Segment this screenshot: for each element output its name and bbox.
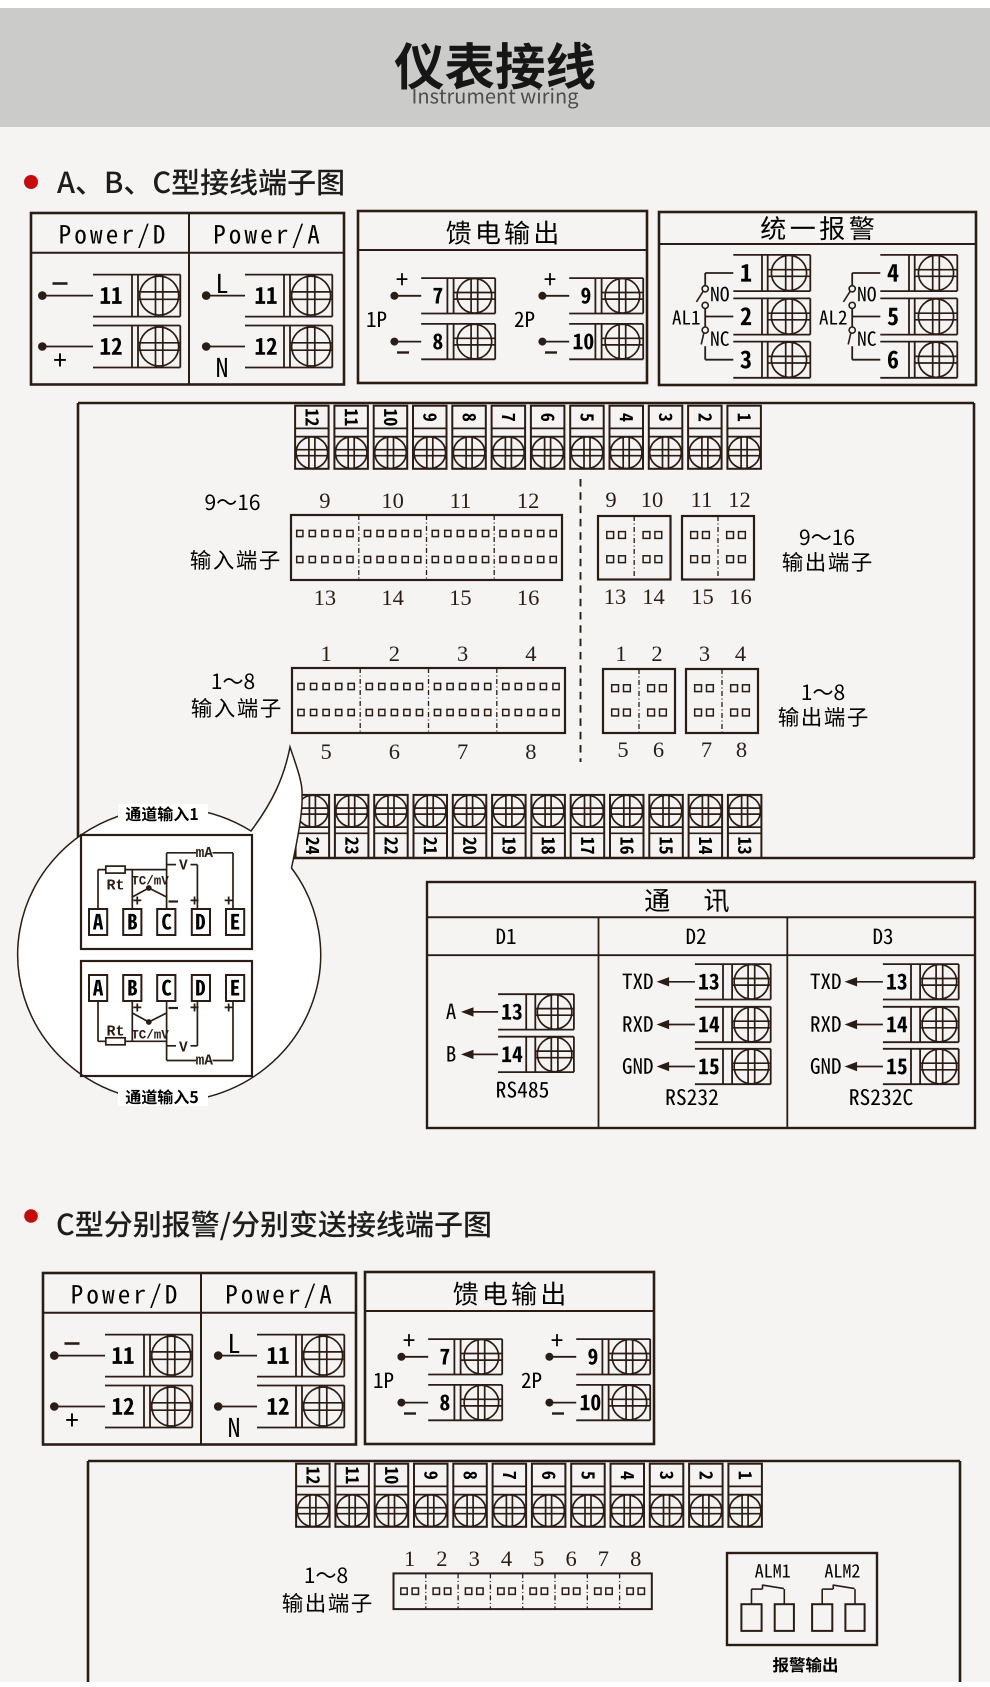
- svg-text:8: 8: [630, 1546, 641, 1571]
- svg-text:mA: mA: [196, 1054, 214, 1070]
- svg-text:15: 15: [691, 584, 714, 609]
- svg-text:13: 13: [604, 584, 627, 609]
- svg-text:14: 14: [642, 584, 665, 609]
- svg-text:Rt: Rt: [106, 878, 124, 895]
- svg-text:5: 5: [320, 739, 331, 764]
- svg-text:5: 5: [533, 1546, 544, 1571]
- svg-text:12: 12: [517, 488, 540, 513]
- svg-text:1: 1: [320, 641, 331, 666]
- svg-text:3: 3: [699, 641, 710, 666]
- svg-text:Rt: Rt: [106, 1023, 124, 1040]
- svg-text:7: 7: [701, 737, 712, 762]
- svg-text:11: 11: [450, 488, 472, 513]
- svg-text:+: +: [224, 1000, 234, 1018]
- svg-text:4: 4: [525, 641, 536, 666]
- svg-text:9: 9: [605, 487, 616, 512]
- svg-text:10: 10: [641, 487, 664, 512]
- svg-text:4: 4: [501, 1546, 512, 1571]
- svg-text:+: +: [190, 893, 200, 911]
- svg-text:16: 16: [517, 585, 540, 610]
- svg-text:+: +: [224, 893, 234, 911]
- svg-text:2: 2: [436, 1546, 447, 1571]
- svg-text:16: 16: [729, 584, 752, 609]
- svg-text:11: 11: [691, 487, 713, 512]
- svg-text:15: 15: [449, 585, 472, 610]
- svg-text:mA: mA: [196, 846, 214, 862]
- svg-text:V: V: [179, 858, 188, 874]
- svg-text:6: 6: [565, 1546, 576, 1571]
- svg-text:13: 13: [314, 585, 337, 610]
- svg-text:12: 12: [728, 487, 751, 512]
- svg-text:2: 2: [651, 641, 662, 666]
- svg-text:14: 14: [381, 585, 404, 610]
- svg-text:TC/mV: TC/mV: [131, 875, 169, 889]
- svg-text:2: 2: [389, 641, 400, 666]
- svg-text:1: 1: [404, 1546, 415, 1571]
- svg-text:9: 9: [319, 488, 330, 513]
- svg-text:3: 3: [457, 641, 468, 666]
- svg-text:4: 4: [735, 641, 746, 666]
- svg-text:3: 3: [469, 1546, 480, 1571]
- svg-text:+: +: [132, 1000, 142, 1018]
- svg-text:7: 7: [598, 1546, 609, 1571]
- svg-text:+: +: [190, 1000, 200, 1018]
- svg-text:5: 5: [617, 737, 628, 762]
- svg-text:10: 10: [381, 488, 404, 513]
- svg-text:+: +: [132, 893, 142, 911]
- svg-text:8: 8: [736, 737, 747, 762]
- svg-text:TC/mV: TC/mV: [131, 1029, 169, 1043]
- svg-text:6: 6: [653, 737, 664, 762]
- svg-text:1: 1: [615, 641, 626, 666]
- svg-text:8: 8: [525, 739, 536, 764]
- svg-text:V: V: [179, 1041, 188, 1057]
- svg-text:7: 7: [457, 739, 468, 764]
- svg-text:6: 6: [389, 739, 400, 764]
